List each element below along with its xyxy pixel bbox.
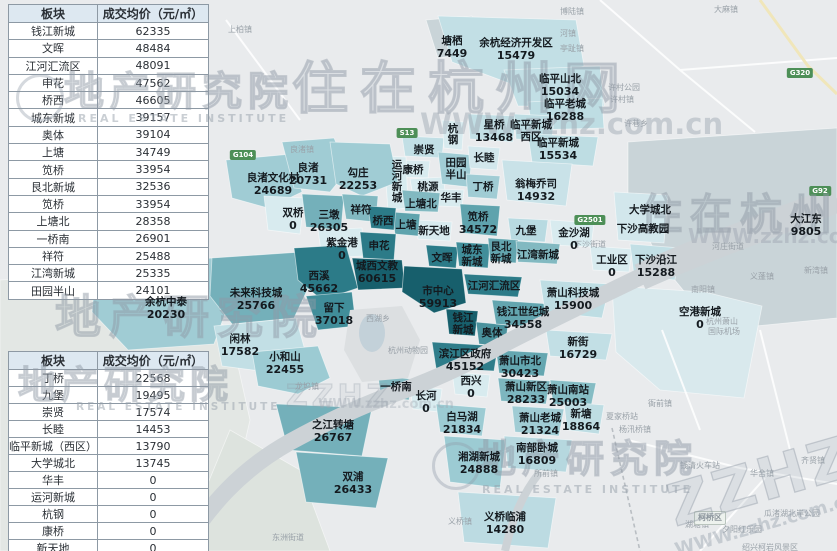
table-cell: 祥符 [9, 247, 98, 264]
town-label: 绍兴柯岩风景区 [742, 544, 798, 551]
plate-label: 申花 [369, 241, 390, 253]
town-label: 许村镇 [610, 96, 634, 104]
watermark-logo-circle-top [16, 74, 64, 122]
plate-label: 运河新城 [391, 160, 403, 204]
town-label: 东洲街道 [272, 534, 304, 542]
plate-label: 义桥临浦14280 [484, 512, 526, 536]
table-cell: 0 [98, 506, 209, 523]
table-row: 上塘34749 [9, 144, 209, 161]
table-row: 笕桥33954 [9, 195, 209, 212]
table-row: 临平新城（西区）13790 [9, 438, 209, 455]
table-row: 奥体39104 [9, 126, 209, 143]
table-cell: 崇贤 [9, 404, 98, 421]
plate-label: 南部卧城16809 [516, 443, 558, 467]
table-cell: 32536 [98, 178, 209, 195]
plate-label: 勾庄22253 [339, 168, 377, 192]
table-cell: 46605 [98, 92, 209, 109]
table-row: 崇贤17574 [9, 404, 209, 421]
table-cell: 0 [98, 540, 209, 551]
plate-label: 三墩26305 [310, 210, 348, 234]
table-cell: 康桥 [9, 523, 98, 540]
district-badge: 柯桥区 [694, 511, 726, 525]
town-label: 许村公园 [608, 84, 640, 92]
plate-label: 下沙高教园 [617, 224, 670, 236]
plate-label: 萧山新区28233 [505, 382, 547, 406]
road-shield-badge: G320 [787, 68, 813, 78]
plate-label: 江河汇流区 [468, 281, 521, 293]
town-label: 南阳镇 [691, 286, 715, 294]
table-cell: 江河汇流区 [9, 57, 98, 74]
table-row: 丁桥22568 [9, 370, 209, 387]
table-row: 钱江新城62335 [9, 23, 209, 40]
column-header: 成交均价（元/㎡） [98, 352, 209, 370]
table-row: 祥符25488 [9, 247, 209, 264]
town-label: 钱清火车站 [680, 462, 720, 470]
plate-label: 城西文教60615 [356, 261, 398, 285]
table-cell: 14453 [98, 421, 209, 438]
plate-label: 新塘18864 [562, 409, 600, 433]
plate-label: 滨江区政府45152 [439, 349, 492, 373]
table-cell: 运河新城 [9, 489, 98, 506]
plate-label: 空港新城0 [679, 307, 721, 331]
table-cell: 笕桥 [9, 161, 98, 178]
plate-label: 华丰 [441, 193, 462, 205]
table-cell: 华丰 [9, 472, 98, 489]
table-row: 笕桥33954 [9, 161, 209, 178]
table-cell: 48091 [98, 57, 209, 74]
plate-label: 上塘北 [405, 199, 437, 211]
table-row: 康桥0 [9, 523, 209, 540]
table-row: 大学城北13745 [9, 455, 209, 472]
table-cell: 34749 [98, 144, 209, 161]
table-cell: 0 [98, 489, 209, 506]
table-cell: 一桥南 [9, 230, 98, 247]
table-cell: 28358 [98, 213, 209, 230]
plate-label: 长睦 [474, 153, 495, 165]
plate-label: 杭钢 [447, 124, 459, 146]
table-cell: 0 [98, 472, 209, 489]
plate-label: 桃源 [418, 182, 439, 194]
plate-label: 之江转塘26767 [312, 420, 354, 444]
table-cell: 文晖 [9, 40, 98, 57]
table-cell: 奥体 [9, 126, 98, 143]
plate-label: 大学城北 [629, 205, 671, 217]
town-label: 西湖乡 [366, 315, 390, 323]
town-label: 许巷乡 [624, 120, 648, 128]
plate-label: 临平山北15034 [539, 74, 581, 98]
table-cell: 39104 [98, 126, 209, 143]
table-cell: 39157 [98, 109, 209, 126]
plate-label: 金沙湖0 [558, 228, 590, 252]
road-shield-badge: S13 [397, 128, 418, 138]
table-cell: 临平新城（西区） [9, 438, 98, 455]
town-label: 华舍镇 [750, 470, 774, 478]
table-cell: 62335 [98, 23, 209, 40]
plate-label: 翁梅乔司14932 [515, 179, 557, 203]
table-row: 一桥南26901 [9, 230, 209, 247]
table-cell: 33954 [98, 161, 209, 178]
table-cell: 上塘 [9, 144, 98, 161]
plate-label: 文晖 [432, 253, 453, 265]
table-cell: 13745 [98, 455, 209, 472]
plate-label: 祥符 [351, 205, 372, 217]
plate-label: 未来科技城25766 [230, 288, 283, 312]
town-label: 齐贤镇 [801, 457, 825, 465]
road-shield-badge: G92 [809, 186, 831, 196]
table-cell: 艮北新城 [9, 178, 98, 195]
table-cell: 13790 [98, 438, 209, 455]
table-cell: 25335 [98, 265, 209, 282]
town-label: 龙坞镇 [295, 383, 319, 391]
table-cell: 长睦 [9, 421, 98, 438]
table-cell: 杭钢 [9, 506, 98, 523]
town-label: 瓜渚湖北岸公园 [764, 510, 820, 518]
plate-label: 市中心59913 [419, 286, 457, 310]
table-cell: 25488 [98, 247, 209, 264]
table-row: 上塘北28358 [9, 213, 209, 230]
price-table-bottom: 板块成交均价（元/㎡）丁桥22568九堡19495崇贤17574长睦14453临… [8, 351, 209, 551]
plate-label: 临平新城15534 [537, 138, 579, 162]
table-cell: 33954 [98, 195, 209, 212]
plate-label: 萧山科技城15900 [547, 288, 600, 312]
table-cell: 48484 [98, 40, 209, 57]
column-header: 板块 [9, 5, 98, 23]
table-row: 江河汇流区48091 [9, 57, 209, 74]
town-label: 衙前镇 [648, 400, 672, 408]
table-cell: 19495 [98, 387, 209, 404]
town-label: 良渚镇 [290, 146, 314, 154]
table-row: 江湾新城25335 [9, 265, 209, 282]
plate-label: 江湾新城 [517, 250, 559, 262]
table-cell: 22568 [98, 370, 209, 387]
plate-label: 桥西 [373, 216, 394, 228]
table-cell: 钱江新城 [9, 23, 98, 40]
plate-label: 萧山南站25003 [547, 385, 589, 409]
town-label: 博陆镇 [560, 8, 584, 16]
plate-label: 塘栖7449 [437, 36, 468, 60]
town-label: 河镇 [560, 30, 576, 38]
plate-label: 余杭中泰20230 [145, 297, 187, 321]
table-row: 杭钢0 [9, 506, 209, 523]
table-cell: 笕桥 [9, 195, 98, 212]
column-header: 成交均价（元/㎡） [98, 5, 209, 23]
table-cell: 47562 [98, 74, 209, 91]
table-cell: 新天地 [9, 540, 98, 551]
plate-label: 钱江新城 [453, 313, 474, 337]
plate-label: 余杭经济开发区15479 [479, 38, 553, 62]
plate-label: 新街16729 [559, 337, 597, 361]
town-label: 义蓬镇 [750, 273, 774, 281]
town-label: 亭趾镇 [560, 45, 584, 53]
table-cell: 26901 [98, 230, 209, 247]
road-shield-badge: G2501 [574, 215, 605, 225]
plate-label: 上塘 [396, 220, 417, 232]
plate-label: 大江东9805 [790, 214, 822, 238]
plate-label: 康桥 [403, 165, 424, 177]
table-row: 华丰0 [9, 472, 209, 489]
plate-label: 小和山22455 [266, 352, 304, 376]
plate-label: 双浦26433 [334, 472, 372, 496]
table-cell: 17574 [98, 404, 209, 421]
table-cell: 大学城北 [9, 455, 98, 472]
plate-label: 留下37018 [315, 303, 353, 327]
town-label: 新湾镇 [804, 267, 828, 275]
plate-label: 西溪45662 [300, 271, 338, 295]
column-header: 板块 [9, 352, 98, 370]
plate-label: 艮北新城 [491, 242, 512, 266]
plate-label: 新天地 [418, 226, 450, 238]
plate-label: 萧山老城21324 [519, 413, 561, 437]
plate-label: 笕桥34572 [459, 212, 497, 236]
table-cell: 九堡 [9, 387, 98, 404]
table-row: 长睦14453 [9, 421, 209, 438]
plate-label: 田园半山 [446, 158, 467, 182]
town-label: 杨汛桥镇 [619, 426, 651, 434]
road-shield-badge: G104 [230, 150, 256, 160]
town-label: 杭州动物园 [388, 347, 428, 355]
plate-label: 紫金港0 [326, 238, 358, 262]
table-row: 运河新城0 [9, 489, 209, 506]
plate-label: 九堡 [516, 226, 537, 238]
table-row: 新天地0 [9, 540, 209, 551]
plate-label: 良渚20731 [289, 163, 327, 187]
table-row: 艮北新城32536 [9, 178, 209, 195]
price-table-top: 板块成交均价（元/㎡）钱江新城62335文晖48484江河汇流区48091申花4… [8, 4, 209, 300]
plate-label: 城东新城 [462, 245, 483, 269]
town-label: 所前镇 [534, 470, 558, 478]
hangzhou-price-map: 上柏镇博陆镇大麻镇河镇亭趾镇许村公园许村镇许巷乡良渚镇下沙街道河庄街道义蓬镇新湾… [0, 0, 837, 551]
town-label: 夏家桥站 [606, 413, 638, 421]
plate-label: 工业区0 [596, 255, 628, 279]
table-cell: 丁桥 [9, 370, 98, 387]
town-label: 义桥镇 [448, 518, 472, 526]
town-label: 夕阳红乐园 [722, 526, 762, 534]
plate-label: 下沙沿江15288 [635, 255, 677, 279]
plate-label: 萧山市北30423 [499, 356, 541, 380]
table-cell: 上塘北 [9, 213, 98, 230]
plate-label: 一桥南 [380, 382, 412, 394]
table-cell: 0 [98, 523, 209, 540]
town-label: 河庄街道 [712, 243, 744, 251]
plate-label: 双桥0 [283, 208, 304, 232]
town-label: 大麻镇 [714, 6, 738, 14]
plate-label: 西兴0 [461, 376, 482, 400]
town-label: 上柏镇 [228, 26, 252, 34]
table-cell: 江湾新城 [9, 265, 98, 282]
plate-label: 白马湖21834 [443, 412, 481, 436]
plate-label: 钱江世纪城34558 [497, 307, 550, 331]
plate-label: 星桥13468 [475, 120, 513, 144]
plate-label: 崇贤 [414, 145, 435, 157]
table-cell: 田园半山 [9, 282, 98, 299]
plate-label: 丁桥 [473, 182, 494, 194]
plate-label: 长河0 [416, 391, 437, 415]
plate-label: 闲林17582 [221, 334, 259, 358]
plate-label: 湘湖新城24888 [458, 452, 500, 476]
table-row: 文晖48484 [9, 40, 209, 57]
table-row: 九堡19495 [9, 387, 209, 404]
